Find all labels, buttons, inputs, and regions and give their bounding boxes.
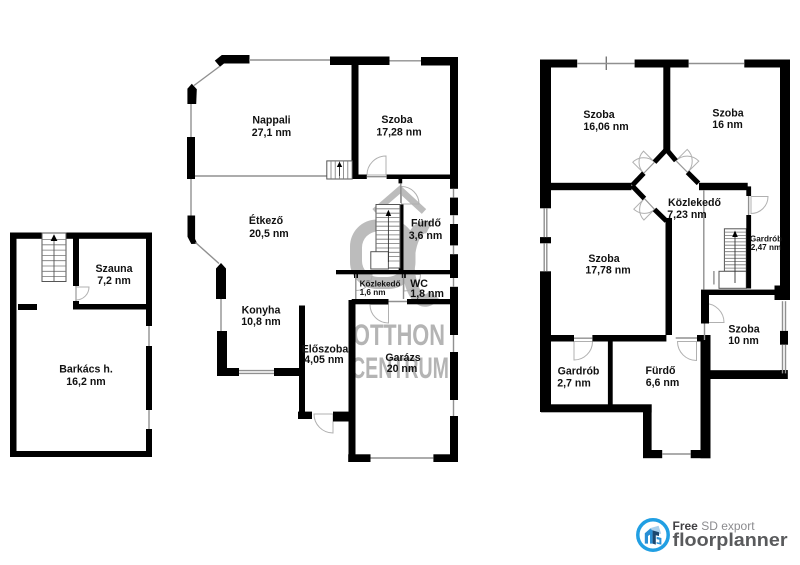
svg-text:OTTHON: OTTHON (353, 319, 445, 352)
svg-text:16,06 nm: 16,06 nm (583, 121, 628, 133)
svg-text:2,7 nm: 2,7 nm (557, 378, 591, 390)
svg-text:3,6 nm: 3,6 nm (409, 230, 443, 242)
svg-text:Konyha: Konyha (242, 305, 281, 317)
svg-text:10 nm: 10 nm (728, 335, 759, 347)
svg-text:20,5 nm: 20,5 nm (249, 228, 288, 240)
svg-text:7,2 nm: 7,2 nm (97, 275, 131, 287)
svg-text:1,8 nm: 1,8 nm (410, 288, 444, 300)
svg-text:27,1 nm: 27,1 nm (252, 127, 291, 139)
svg-text:Nappali: Nappali (252, 115, 290, 127)
svg-text:Szoba: Szoba (588, 253, 619, 265)
svg-text:Közlekedő: Közlekedő (668, 197, 722, 209)
svg-text:floorplanner: floorplanner (673, 530, 788, 550)
svg-text:10,8 nm: 10,8 nm (241, 316, 280, 328)
svg-text:1,6 nm: 1,6 nm (360, 288, 386, 297)
svg-text:Fürdő: Fürdő (411, 218, 442, 230)
svg-text:17,78 nm: 17,78 nm (585, 265, 630, 277)
svg-text:Szoba: Szoba (381, 114, 412, 126)
svg-text:Szoba: Szoba (712, 108, 743, 120)
svg-text:7,23 nm: 7,23 nm (667, 209, 706, 221)
svg-text:Barkács h.: Barkács h. (59, 364, 113, 376)
svg-text:Fürdő: Fürdő (645, 365, 676, 377)
svg-text:20 nm: 20 nm (387, 363, 418, 375)
svg-text:2,47 nm: 2,47 nm (751, 243, 782, 252)
svg-text:17,28 nm: 17,28 nm (376, 127, 421, 139)
svg-text:Szauna: Szauna (95, 263, 132, 275)
svg-text:Szoba: Szoba (728, 324, 759, 336)
svg-text:6,6 nm: 6,6 nm (646, 377, 680, 389)
svg-text:Gardrób: Gardrób (558, 366, 600, 378)
svg-text:Szoba: Szoba (583, 109, 614, 121)
svg-text:16,2 nm: 16,2 nm (66, 376, 105, 388)
svg-text:16 nm: 16 nm (712, 119, 743, 131)
svg-text:Étkező: Étkező (249, 214, 284, 227)
svg-text:4,05 nm: 4,05 nm (304, 354, 343, 366)
